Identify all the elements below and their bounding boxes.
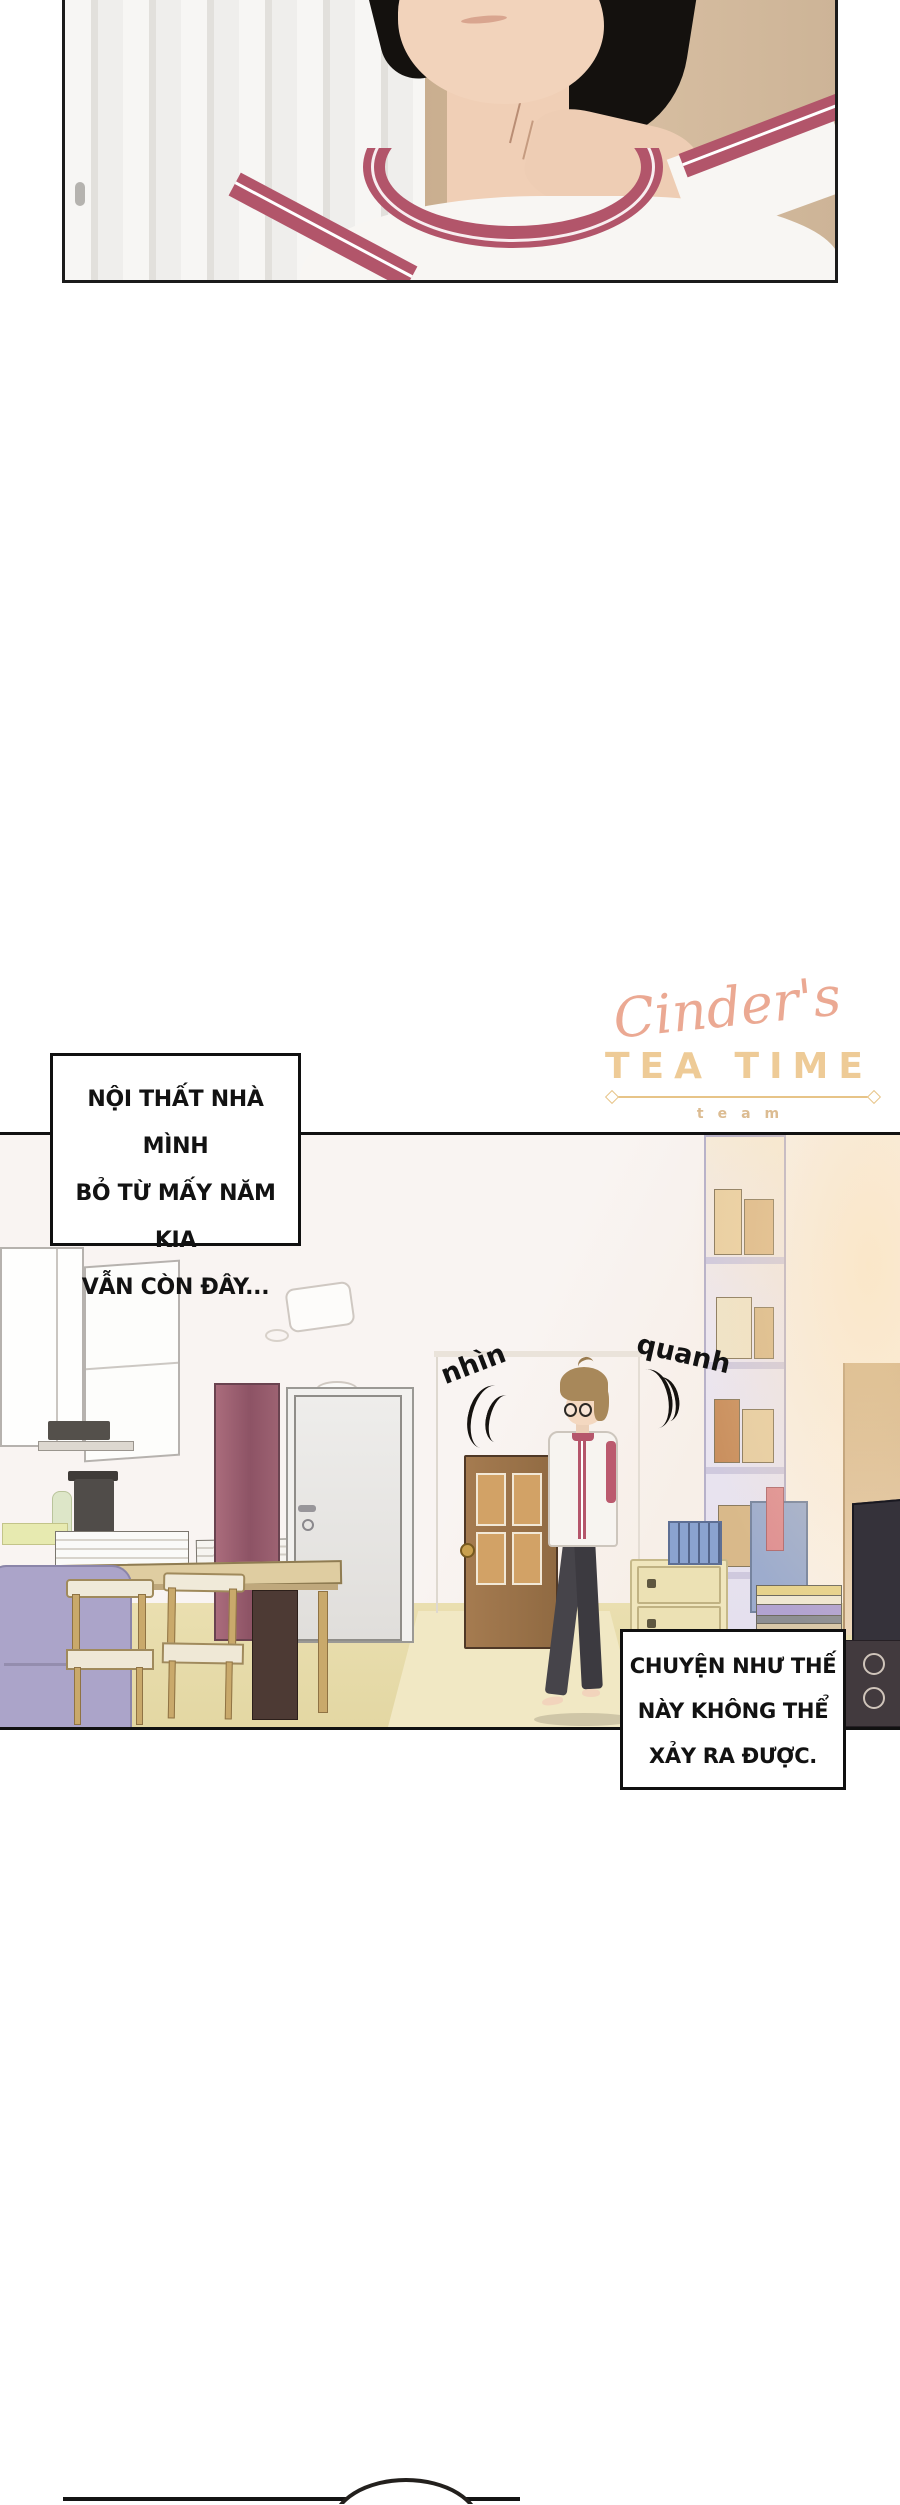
table-slab-leg <box>252 1590 298 1720</box>
shelf-items <box>48 1421 110 1440</box>
door-lock <box>302 1519 314 1531</box>
watermark-title-text: TEA TIME <box>605 1046 897 1087</box>
watermark-script-text: Cinder's <box>610 964 844 1051</box>
chair <box>161 1572 246 1723</box>
watermark-subtitle-text: team <box>605 1106 885 1122</box>
chair <box>66 1579 154 1729</box>
diamond-icon <box>605 1090 619 1104</box>
wall-line <box>436 1357 438 1613</box>
door-knob <box>460 1543 475 1558</box>
entry-door <box>294 1395 402 1641</box>
narration-line: NỘI THẤT NHÀ MÌNH <box>53 1076 298 1170</box>
tv-screen <box>852 1499 900 1650</box>
panel-closeup-neck <box>62 0 838 283</box>
sfx-text-look: nhìn <box>437 1338 511 1391</box>
wall-shelf <box>38 1441 134 1451</box>
coffee-machine <box>74 1479 114 1537</box>
collar-band <box>357 148 701 260</box>
table-leg <box>318 1591 328 1713</box>
floor-shadow <box>534 1713 634 1726</box>
standing-person <box>538 1369 633 1730</box>
scanlation-watermark: Cinder's TEA TIME team <box>605 982 897 1134</box>
ceiling-vent <box>265 1329 289 1342</box>
door-window-panes <box>476 1473 542 1585</box>
watermark-divider <box>609 1096 877 1098</box>
book-stack <box>55 1531 189 1567</box>
track-jacket <box>548 1431 618 1547</box>
bare-foot <box>542 1696 564 1707</box>
narration-line: NÀY KHÔNG THỂ <box>623 1689 843 1734</box>
speaker <box>844 1640 900 1727</box>
head-outline <box>328 2478 478 2504</box>
door-handle <box>298 1505 316 1512</box>
bare-foot <box>582 1689 600 1697</box>
diamond-icon <box>867 1090 881 1104</box>
narration-line: BỎ TỪ MẤY NĂM KIA <box>53 1170 298 1264</box>
narration-line: CHUYỆN NHƯ THẾ <box>623 1644 843 1689</box>
brown-hair-side <box>594 1385 609 1421</box>
glasses <box>564 1403 592 1414</box>
narration-line: VẪN CÒN ĐÂY... <box>53 1264 298 1311</box>
pants-leg <box>574 1541 603 1690</box>
narration-box-1: NỘI THẤT NHÀ MÌNH BỎ TỪ MẤY NĂM KIA VẪN … <box>50 1053 301 1246</box>
blue-crate <box>668 1521 722 1565</box>
door-knob <box>75 182 85 206</box>
narration-box-2: CHUYỆN NHƯ THẾ NÀY KHÔNG THỂ XẢY RA ĐƯỢC… <box>620 1629 846 1790</box>
narration-line: XẢY RA ĐƯỢC. <box>623 1734 843 1779</box>
